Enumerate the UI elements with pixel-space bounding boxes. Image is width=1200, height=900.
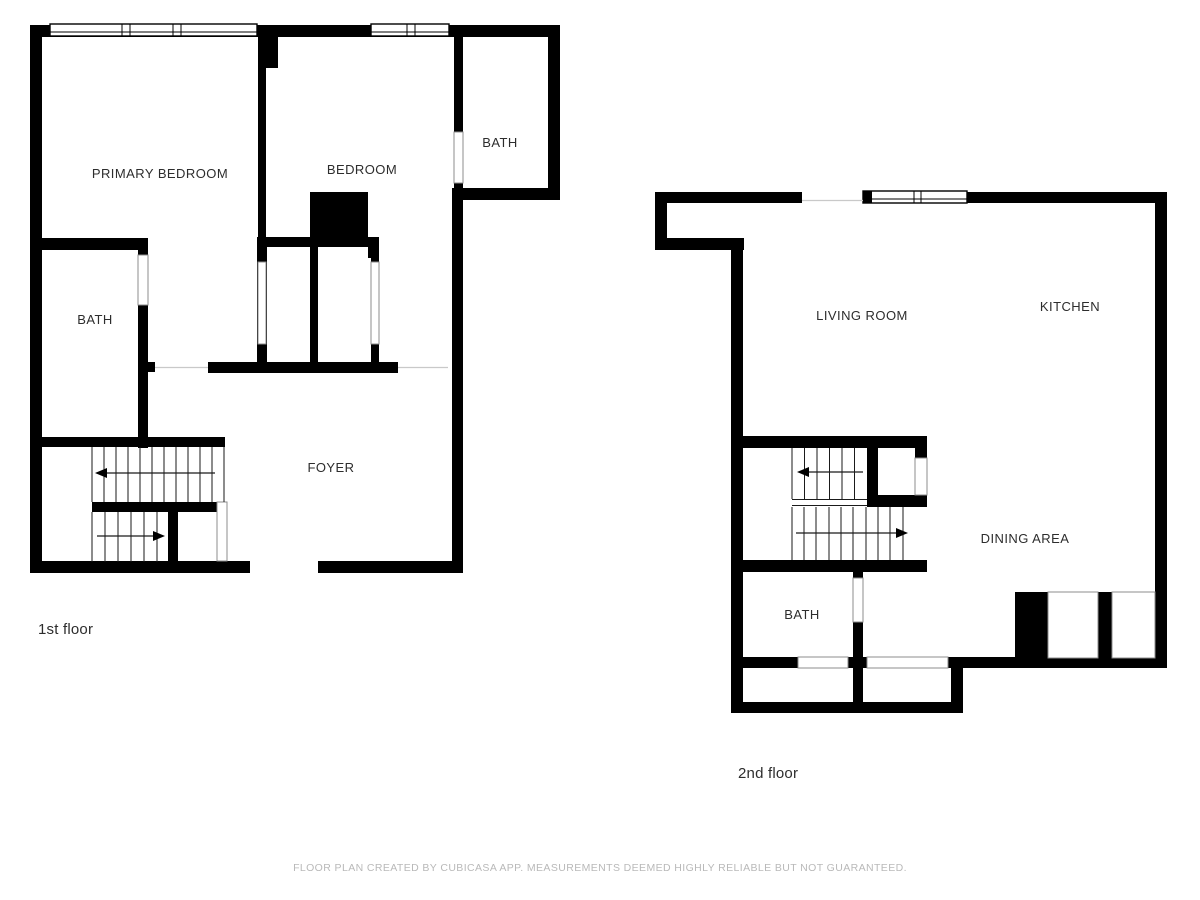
- room-label-bedroom: BEDROOM: [327, 162, 397, 177]
- door-opening: [258, 262, 266, 344]
- window: [371, 24, 449, 36]
- door-opening: [915, 458, 927, 495]
- floor-2-windows: [802, 191, 967, 203]
- room-label-bath-upper-right: BATH: [482, 135, 518, 150]
- door-opening: [454, 132, 463, 183]
- stair-direction-arrow-up: [95, 468, 215, 478]
- door-opening: [867, 657, 948, 668]
- floor-caption-2: 2nd floor: [738, 765, 798, 782]
- door-opening: [138, 255, 148, 305]
- door-opening: [371, 262, 379, 344]
- room-label-foyer: FOYER: [307, 460, 354, 475]
- floor-1-windows: [50, 24, 449, 36]
- floor-1-walls: [30, 25, 560, 573]
- closet-block: [1015, 592, 1048, 668]
- window: [50, 24, 257, 36]
- floor-plans-canvas: PRIMARY BEDROOM BEDROOM BATH BATH FOYER …: [0, 0, 1200, 900]
- floor-plan-1: PRIMARY BEDROOM BEDROOM BATH BATH FOYER …: [30, 24, 560, 638]
- door-opening: [217, 502, 227, 561]
- stair-treads-lower: [92, 512, 157, 562]
- window: [863, 191, 967, 203]
- door-opening: [853, 578, 863, 622]
- stair-direction-arrow-down: [796, 528, 908, 538]
- room-label-primary-bedroom: PRIMARY BEDROOM: [92, 166, 228, 181]
- closet-opening: [1048, 592, 1098, 658]
- floor-caption-1: 1st floor: [38, 621, 93, 638]
- stair-treads-upper: [92, 447, 224, 502]
- room-label-living-room: LIVING ROOM: [816, 308, 908, 323]
- room-label-dining-area: DINING AREA: [981, 531, 1070, 546]
- closet-opening: [1112, 592, 1155, 658]
- disclaimer-text: FLOOR PLAN CREATED BY CUBICASA APP. MEAS…: [0, 862, 1200, 874]
- room-label-bath-left: BATH: [77, 312, 113, 327]
- floor-plan-2: LIVING ROOM KITCHEN DINING AREA BATH 2nd…: [655, 191, 1167, 782]
- door-opening: [798, 657, 848, 668]
- room-label-bath-2: BATH: [784, 607, 820, 622]
- room-label-kitchen: KITCHEN: [1040, 299, 1100, 314]
- floor-1-doors: [138, 132, 463, 561]
- bedroom-closet-block: [310, 192, 368, 242]
